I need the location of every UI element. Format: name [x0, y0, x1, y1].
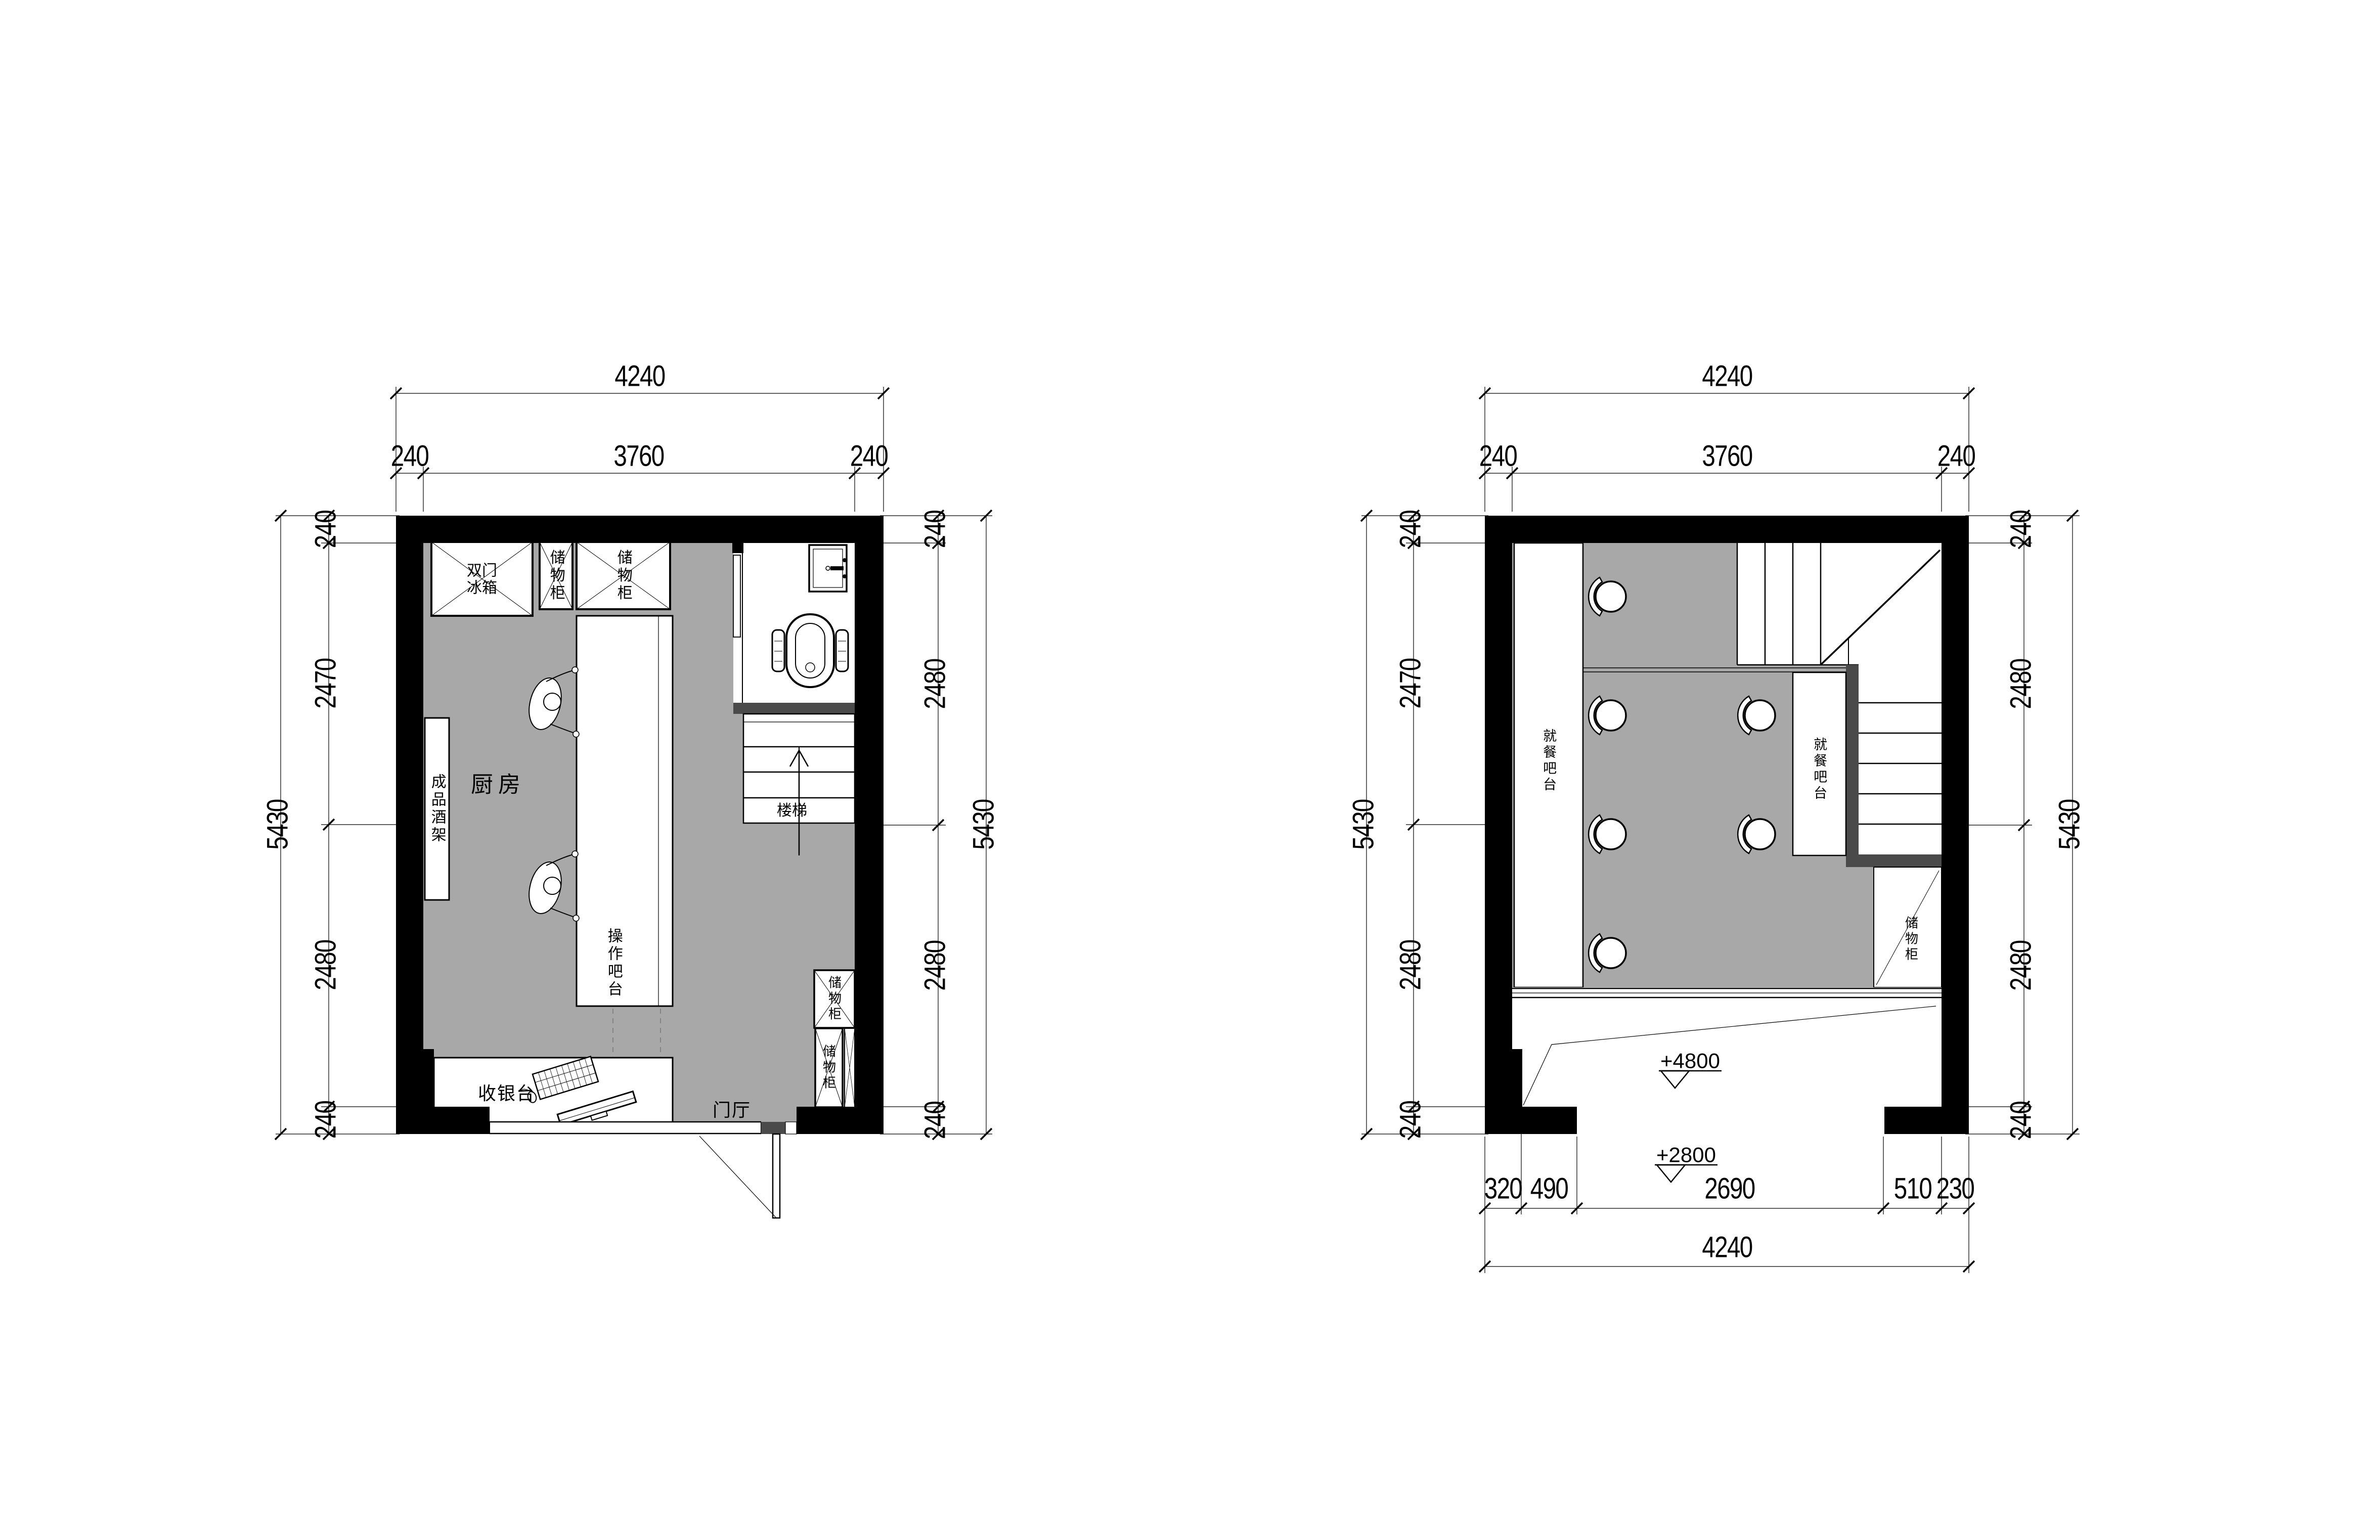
dim-bottom-seg: 510	[1894, 1173, 1931, 1206]
dim-bottom-seg: 230	[1936, 1173, 1974, 1206]
cabinet-label: 储物柜	[826, 976, 841, 1023]
dim-bottom-total: 4240	[1702, 1232, 1752, 1264]
second-floor-plan	[1361, 387, 2080, 1273]
dim-left-seg: 2470	[1395, 658, 1428, 708]
dim-right-seg: 2480	[2005, 940, 2038, 990]
dim-right-seg: 240	[2005, 1102, 2038, 1139]
dim-left-total: 5430	[262, 799, 295, 849]
dim-left-seg: 240	[1395, 1101, 1428, 1139]
entry-door-leaf	[773, 1134, 780, 1218]
foyer-label: 门厅	[713, 1100, 751, 1120]
dim-left-seg: 2480	[1395, 940, 1428, 990]
wine-rack-label: 成品酒架	[428, 774, 446, 844]
door-frame	[785, 1122, 797, 1134]
void-break-line	[1523, 1006, 1936, 1105]
dim-left-seg: 2470	[310, 658, 343, 708]
door-stub	[732, 543, 743, 553]
cabinet-label: 储物柜	[821, 1045, 835, 1092]
plan-drawing	[0, 0, 2380, 1540]
dim-right-total: 5430	[2054, 799, 2087, 849]
dim-left-seg: 240	[310, 511, 343, 548]
dim-left-seg: 240	[310, 1101, 343, 1139]
operation-bar	[577, 616, 673, 1006]
dim-right-seg: 2480	[2005, 659, 2038, 709]
mezzanine-railing	[1512, 987, 1942, 1000]
dining-bar-label: 就餐吧台	[1541, 729, 1556, 793]
dim-bottom-seg: 490	[1530, 1173, 1568, 1206]
fridge-label: 双门 冰箱	[467, 562, 497, 596]
shopfront-window	[490, 1122, 761, 1134]
first-floor-plan	[275, 387, 992, 1218]
dim-top-seg: 240	[1937, 440, 1975, 473]
stair-partition-vertical	[1846, 665, 1859, 867]
dim-right-seg: 2480	[919, 659, 952, 709]
cashier-label: 收银台	[478, 1083, 536, 1104]
storage-cabinet-label: 储物柜	[1903, 916, 1918, 963]
dim-left-seg: 240	[1395, 511, 1428, 548]
cabinet-label: 储物柜	[547, 550, 564, 603]
dim-right-seg: 240	[2005, 511, 2038, 548]
stair-partition-horizontal	[1846, 854, 1942, 867]
dim-top-seg: 3760	[613, 440, 664, 473]
dim-right-seg: 240	[919, 511, 952, 548]
sliding-door-leaf	[733, 555, 740, 637]
door-swing	[699, 1136, 776, 1218]
dim-bottom-seg: 2690	[1704, 1173, 1754, 1206]
dim-top-seg: 240	[391, 440, 428, 473]
bathroom-wall-band	[733, 703, 855, 714]
dim-top-total: 4240	[614, 360, 665, 393]
dim-right-total: 5430	[968, 799, 1001, 849]
level-lower-label: +2800	[1656, 1143, 1716, 1166]
dim-top-seg: 240	[850, 440, 888, 473]
floor-plan-sheet: 4240 240 3760 240 240 2470 2480 240 5430…	[0, 0, 2380, 1540]
dim-bottom-seg: 320	[1484, 1173, 1522, 1206]
level-marker-upper	[1659, 1071, 1722, 1088]
work-bar-label: 操作吧台	[605, 928, 622, 999]
stair-label: 楼梯	[777, 802, 807, 820]
dining-bar-label: 就餐吧台	[1812, 737, 1827, 802]
kitchen-label: 厨房	[471, 772, 525, 797]
dim-top-total: 4240	[1702, 360, 1752, 393]
stair-lower-flight	[1859, 665, 1942, 854]
dim-top-seg: 240	[1479, 440, 1517, 473]
door-threshold	[761, 1122, 785, 1134]
dim-left-total: 5430	[1348, 799, 1381, 849]
dim-top-seg: 3760	[1702, 440, 1752, 473]
dim-left-seg: 2480	[310, 940, 343, 990]
washbasin-unit	[809, 545, 847, 592]
dim-right-seg: 240	[919, 1102, 952, 1139]
cabinet-label: 储物柜	[614, 550, 632, 603]
dim-right-seg: 2480	[919, 940, 952, 990]
level-upper-label: +4800	[1660, 1049, 1720, 1072]
